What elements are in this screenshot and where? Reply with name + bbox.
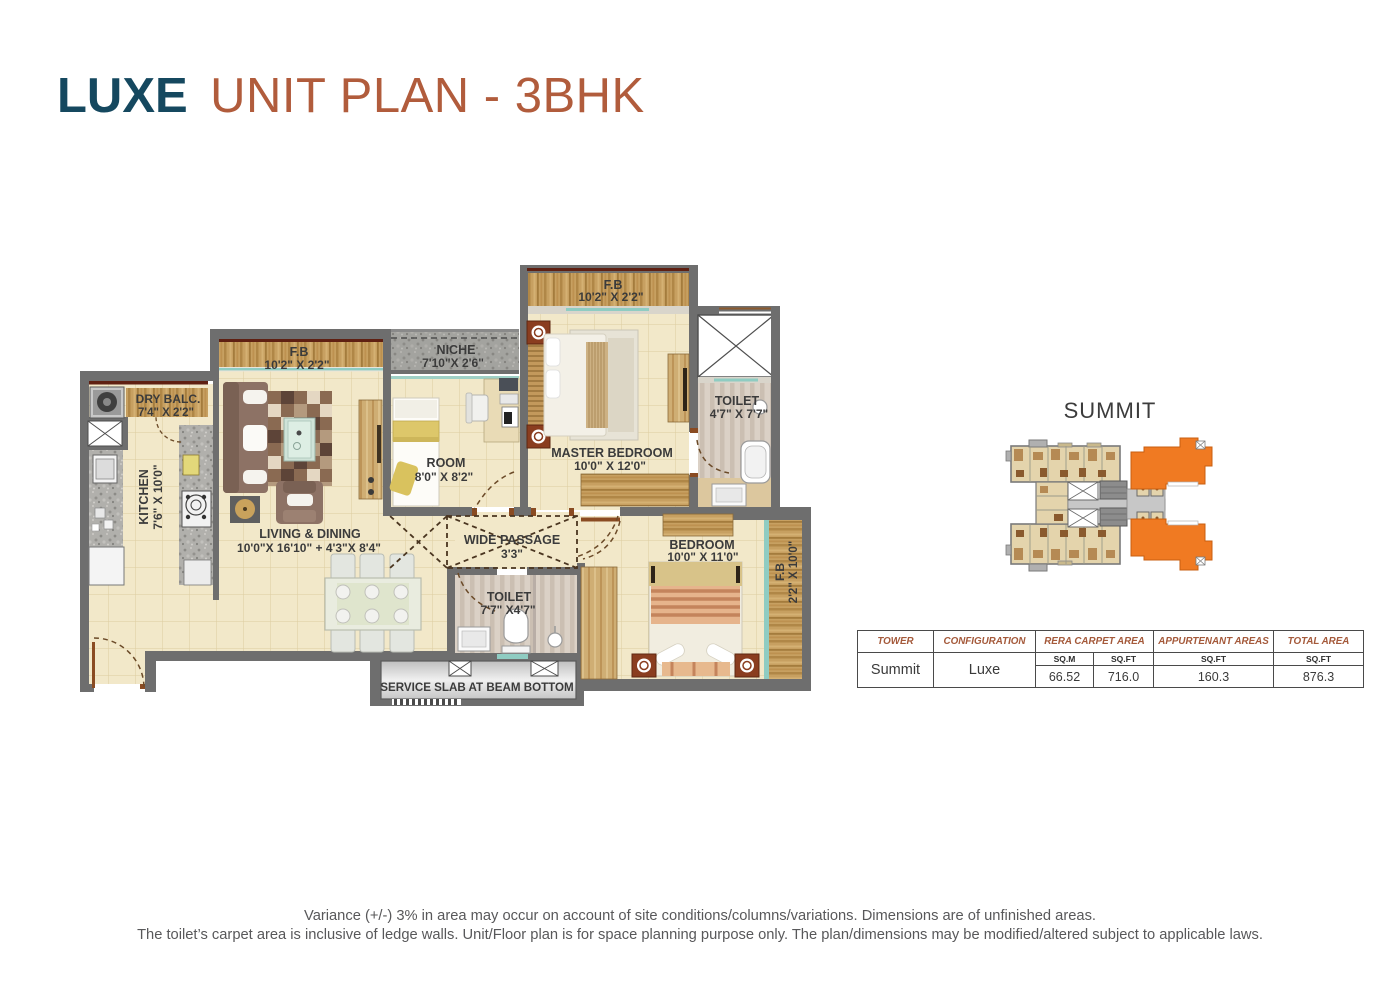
svg-text:10'2" X 2'2": 10'2" X 2'2" xyxy=(264,358,329,372)
svg-text:TOILET: TOILET xyxy=(487,590,532,604)
svg-text:7'10"X 2'6": 7'10"X 2'6" xyxy=(422,356,484,370)
svg-text:NICHE: NICHE xyxy=(437,343,476,357)
svg-text:10'0" X 12'0": 10'0" X 12'0" xyxy=(574,459,646,473)
svg-text:8'0" X 8'2": 8'0" X 8'2" xyxy=(415,470,473,484)
svg-text:ROOM: ROOM xyxy=(427,456,466,470)
svg-text:10'2" X 2'2": 10'2" X 2'2" xyxy=(578,290,643,304)
svg-text:TOILET: TOILET xyxy=(715,394,760,408)
svg-text:2'2" X 10'0": 2'2" X 10'0" xyxy=(788,541,800,603)
svg-text:SERVICE SLAB AT BEAM BOTTOM: SERVICE SLAB AT BEAM BOTTOM xyxy=(380,681,573,694)
svg-text:7'6" X 10'0": 7'6" X 10'0" xyxy=(151,464,165,529)
svg-text:7'4" X 2'2": 7'4" X 2'2" xyxy=(138,407,194,419)
svg-text:LIVING & DINING: LIVING & DINING xyxy=(259,527,360,541)
svg-text:F.B: F.B xyxy=(290,345,309,359)
svg-text:MASTER BEDROOM: MASTER BEDROOM xyxy=(551,446,673,460)
svg-text:7'7" X4'7": 7'7" X4'7" xyxy=(480,603,535,617)
svg-text:DRY BALC.: DRY BALC. xyxy=(136,392,201,406)
svg-text:KITCHEN: KITCHEN xyxy=(137,469,151,525)
svg-text:WIDE PASSAGE: WIDE PASSAGE xyxy=(464,533,560,547)
svg-text:F.B: F.B xyxy=(773,563,787,581)
svg-text:10'0" X 11'0": 10'0" X 11'0" xyxy=(667,550,738,564)
svg-text:3'3": 3'3" xyxy=(501,547,523,561)
svg-text:10'0"X 16'10" + 4'3"X 8'4": 10'0"X 16'10" + 4'3"X 8'4" xyxy=(237,541,381,555)
svg-text:4'7" X 7'7": 4'7" X 7'7" xyxy=(710,407,768,421)
